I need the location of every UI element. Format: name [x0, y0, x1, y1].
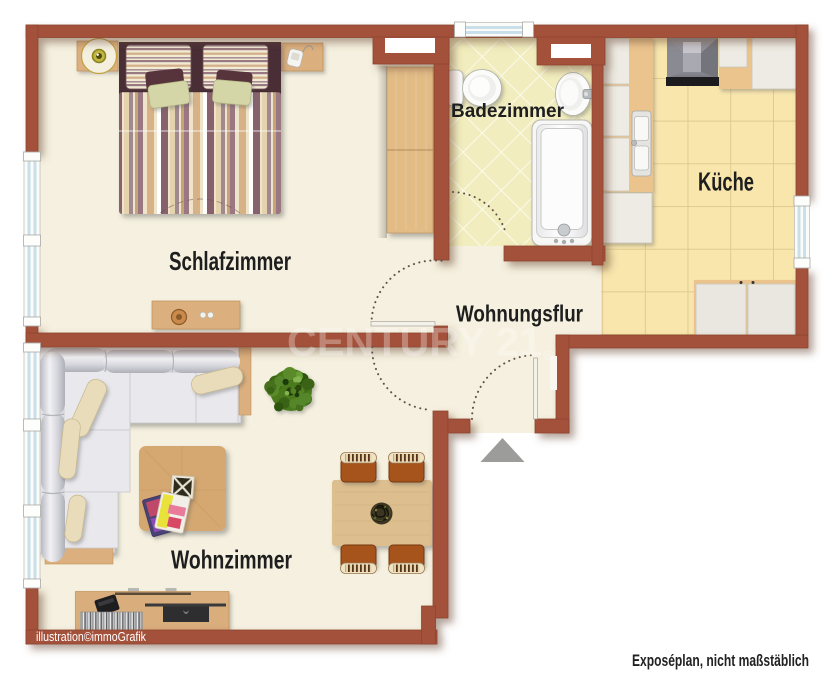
- svg-text:Schlafzimmer: Schlafzimmer: [169, 246, 291, 276]
- svg-text:Badezimmer: Badezimmer: [451, 101, 565, 122]
- svg-text:Exposéplan, nicht maßstäblich: Exposéplan, nicht maßstäblich: [632, 651, 809, 670]
- svg-text:R: R: [546, 354, 551, 361]
- svg-text:CENTURY 21: CENTURY 21: [287, 321, 542, 365]
- svg-text:illustration©immoGrafik: illustration©immoGrafik: [36, 630, 147, 644]
- svg-text:Küche: Küche: [698, 167, 754, 197]
- svg-text:Wohnzimmer: Wohnzimmer: [171, 545, 292, 575]
